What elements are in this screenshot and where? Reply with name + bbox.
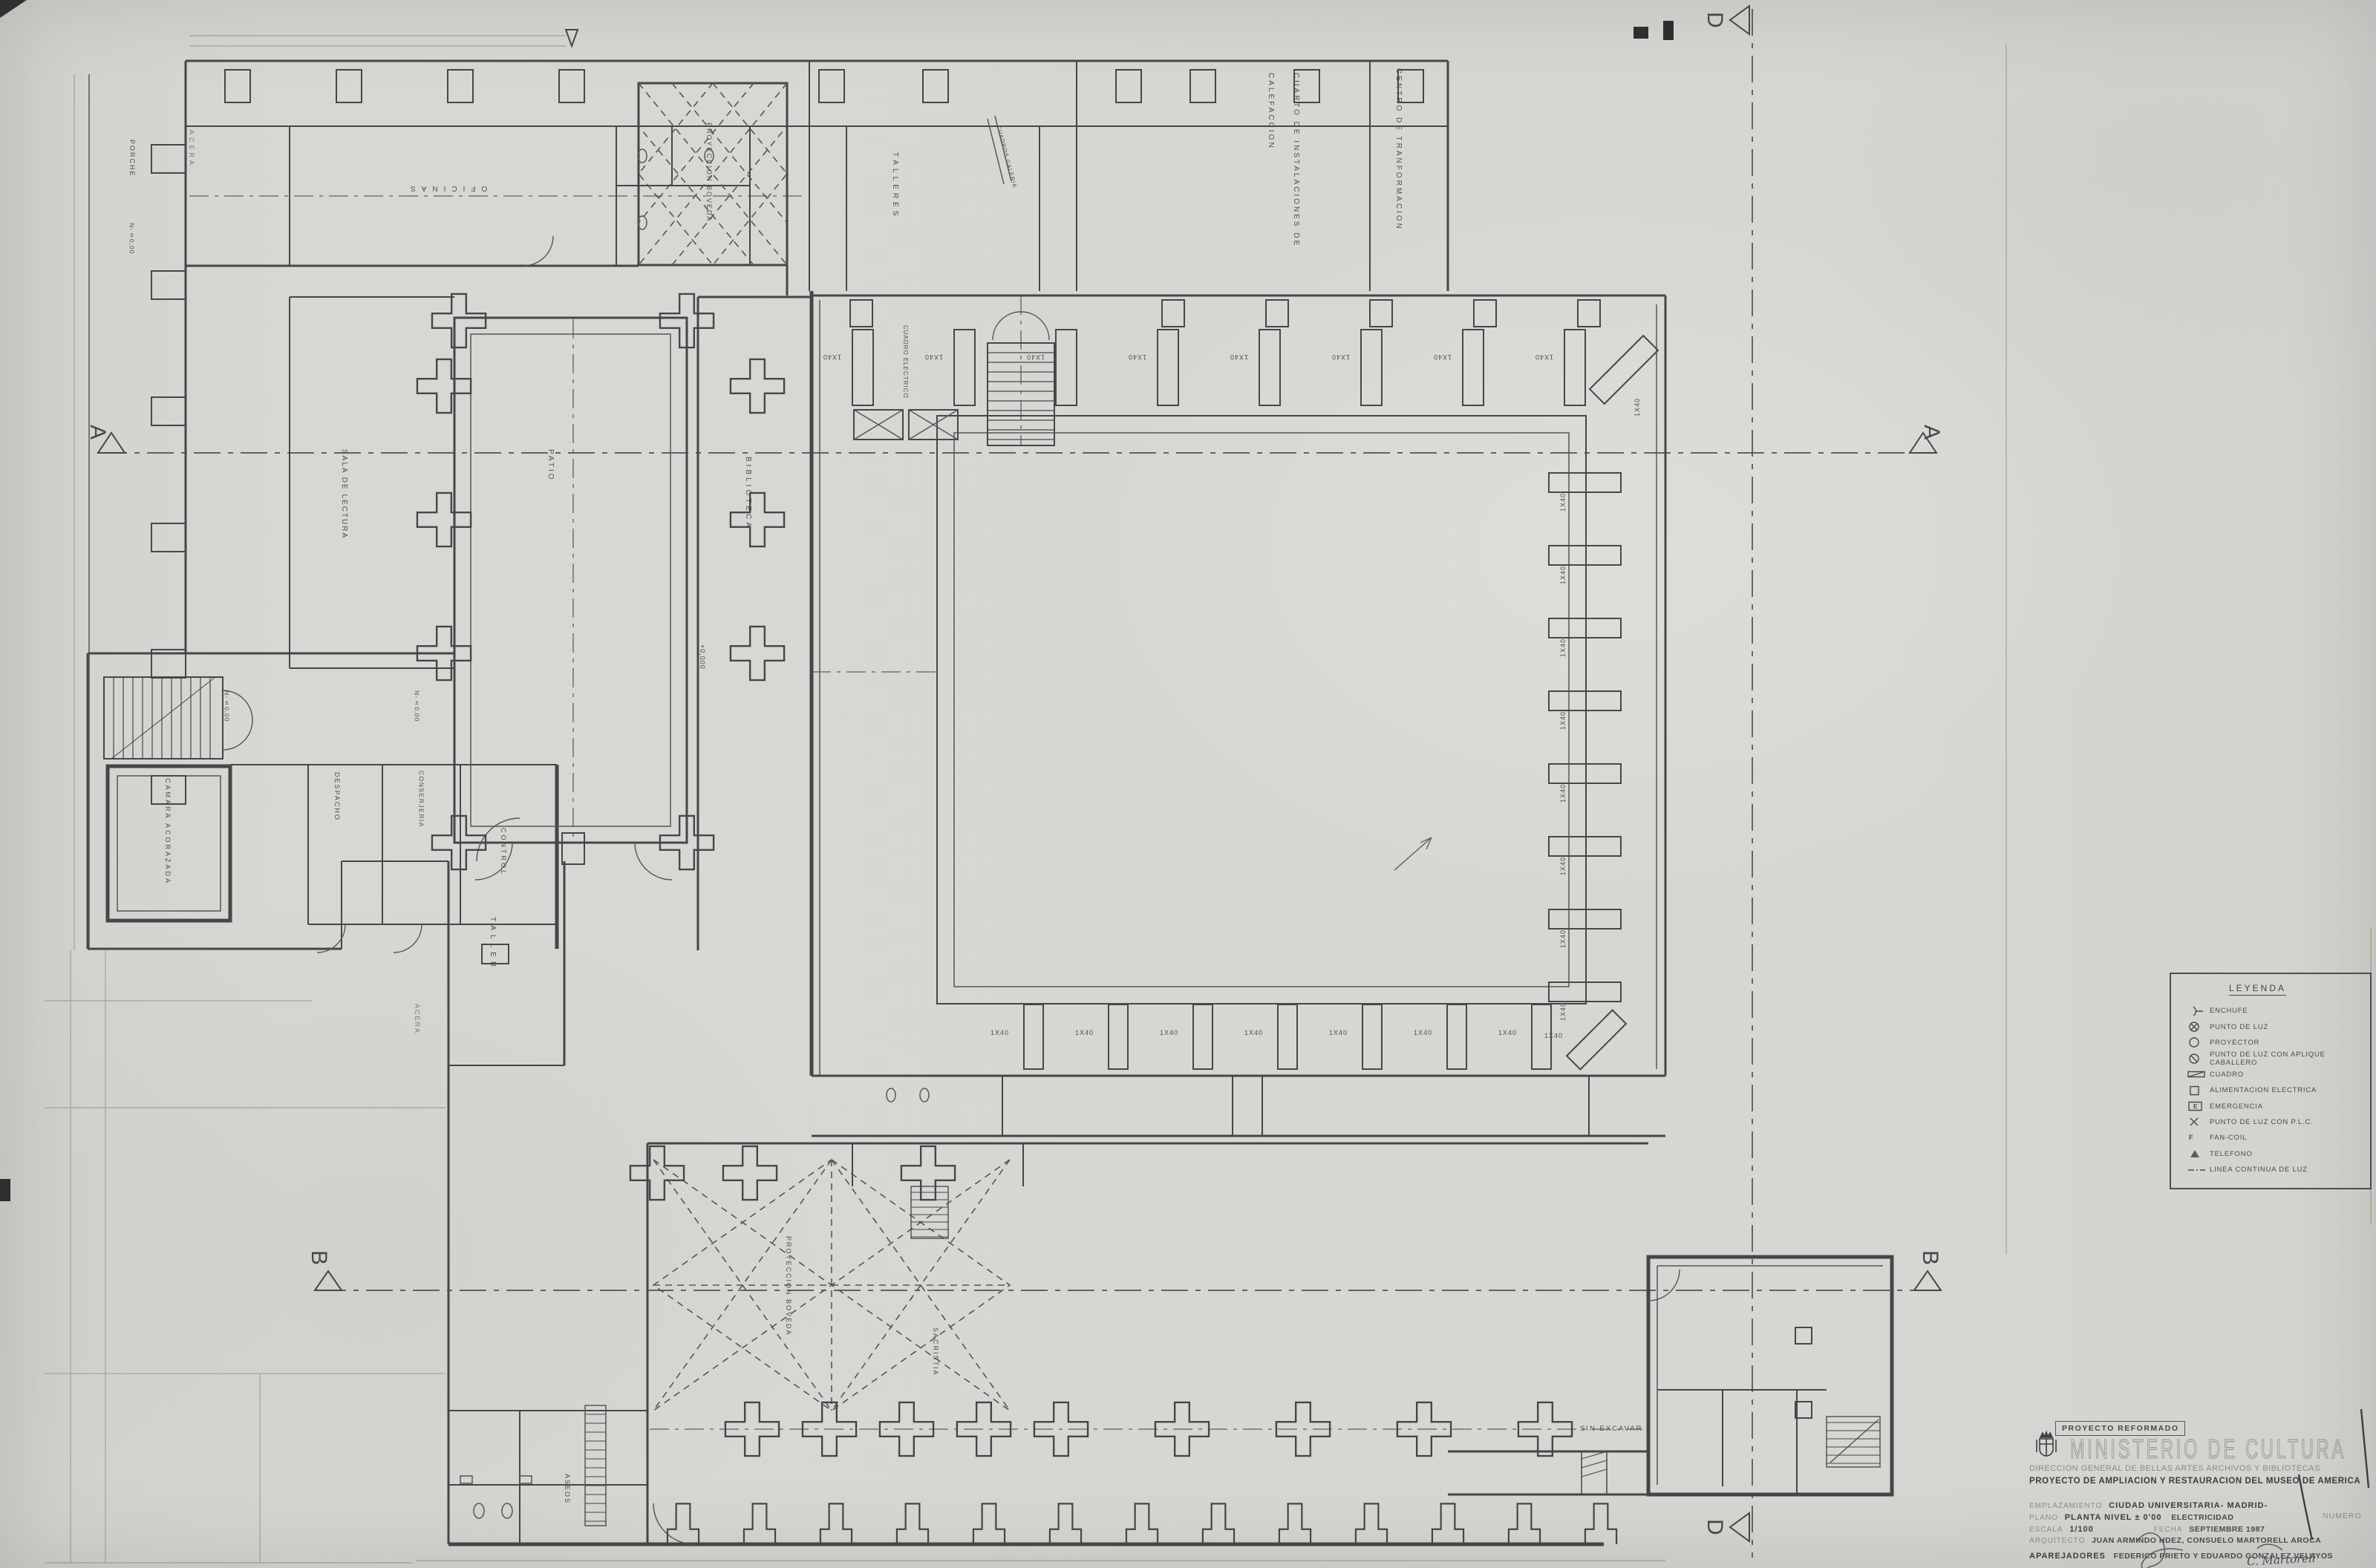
escala-label: ESCALA <box>2029 1526 2063 1534</box>
legend-rows: ENCHUFE PUNTO DE LUZ PROYECTOR PUNTO DE … <box>2171 1003 2370 1177</box>
label-centro-transformacion: CENTRO DE TRANFORMACION <box>1394 68 1403 306</box>
light-fixture-1x40 <box>1446 1004 1467 1070</box>
label-porche-level: N-±0,00 <box>128 223 134 255</box>
legend-item: PUNTO DE LUZ CON P.L.C. <box>2171 1114 2370 1130</box>
label-camara-acorazada: CAMARA ACORAZADA <box>163 778 171 945</box>
emplazamiento-row: EMPLAZAMIENTO CIUDAD UNIVERSITARIA- MADR… <box>2029 1501 2268 1510</box>
legend-title: LEYENDA <box>2229 983 2286 996</box>
legend-item: TELEFONO <box>2171 1146 2370 1162</box>
light-fixture-1x40 <box>1548 690 1622 711</box>
fixture-label: 1X40 <box>1559 1002 1567 1021</box>
fecha-value: SEPTIEMBRE 1987 <box>2189 1525 2265 1534</box>
walls-main <box>88 61 1665 1544</box>
light-fixture-1x40 <box>1548 981 1622 1002</box>
light-fixture-1x40 <box>1548 909 1622 930</box>
fixture-label: 1X40 <box>1559 930 1567 948</box>
legend-item: ALIMENTACION ELECTRICA <box>2171 1082 2370 1098</box>
light-fixture-1x40 <box>1362 1004 1383 1070</box>
emergencia-icon: E <box>2187 1100 2210 1112</box>
label-proyeccion-boveda-chapel: PROYECCION BOVEDA <box>765 1236 796 1344</box>
label-cota: +0,000 <box>698 644 705 670</box>
punto-de-luz-icon <box>2187 1021 2210 1033</box>
fixture-label: 1X40 <box>1559 493 1567 512</box>
fixture-label: 1X40 <box>1535 353 1553 361</box>
fixture-label: 1X40 <box>1244 1029 1263 1036</box>
signature: C. Martorell <box>2247 1552 2316 1568</box>
arquitecto-row: ARQUITECTO JUAN ARMINDO HDEZ, CONSUELO M… <box>2029 1536 2321 1545</box>
title-block: PROYECTO REFORMADO DIRECCION GENERAL DE … <box>2024 1411 2376 1568</box>
light-fixture-1x40 <box>1548 763 1622 784</box>
legend-item: LINEA CONTINUA DE LUZ <box>2171 1162 2370 1177</box>
fixture-label: 1X40 <box>1433 353 1452 361</box>
fixture-label: 1X40 <box>1544 1032 1563 1039</box>
arquitecto-label: ARQUITECTO <box>2029 1537 2085 1545</box>
emplazamiento-label: EMPLAZAMIENTO <box>2029 1502 2102 1510</box>
vault-projection-chapel <box>653 1160 1010 1411</box>
arquitecto-value: JUAN ARMINDO HDEZ, CONSUELO MARTORELL AR… <box>2092 1536 2321 1545</box>
label-conserjeria: CONSERJERIA <box>417 771 424 828</box>
generated-pillars-stairs <box>111 70 1880 1544</box>
enchufe-icon <box>2187 1005 2210 1017</box>
proyector-icon <box>2187 1036 2210 1048</box>
light-fixture-1x40 <box>1259 329 1281 406</box>
numero-label: NUMERO <box>2323 1512 2362 1520</box>
fixture-label: 1X40 <box>1633 398 1641 416</box>
fixture-label: 1X40 <box>1075 1029 1094 1036</box>
label-calefaccion: CUARTO DE INSTALACIONES DE CALEFACCION <box>1231 73 1308 295</box>
label-aseos: ASEOS <box>563 1474 570 1504</box>
legend-item: ENCHUFE <box>2171 1003 2370 1019</box>
project-title-line: PROYECTO DE AMPLIACION Y RESTAURACION DE… <box>2029 1477 2360 1486</box>
light-fixture-1x40 <box>852 329 874 406</box>
legend-box: LEYENDA ENCHUFE PUNTO DE LUZ PROYECTOR <box>2170 973 2372 1189</box>
centerlines <box>189 196 1642 1429</box>
plano-value-2: ELECTRICIDAD <box>2171 1513 2233 1522</box>
fixture-label: 1X40 <box>1559 711 1567 730</box>
aplique-caballero-icon <box>2187 1053 2210 1065</box>
label-sala-lectura: SALA DE LECTURA <box>340 449 348 605</box>
alimentacion-icon <box>2187 1085 2210 1097</box>
fecha-label: FECHA <box>2154 1526 2183 1534</box>
light-fixture-1x40 <box>1277 1004 1298 1070</box>
telefono-icon <box>2187 1148 2210 1160</box>
direccion-general-line: DIRECCION GENERAL DE BELLAS ARTES ARCHIV… <box>2029 1464 2320 1473</box>
section-letter-d-bottom: D <box>1703 1519 1727 1535</box>
light-fixture-1x40 <box>1548 472 1622 493</box>
fixture-label: 1X40 <box>1128 353 1146 361</box>
light-fixture-1x40 <box>1192 1004 1213 1070</box>
fixture-label: 1X40 <box>1414 1029 1432 1036</box>
plan-drawing: A A B B D D MINISTERIO DE CULTURA <box>0 0 2376 1568</box>
fixture-label: 1X40 <box>1559 566 1567 584</box>
emplazamiento-value: CIUDAD UNIVERSITARIA- MADRID- <box>2109 1501 2268 1510</box>
label-porche: PORCHE <box>128 140 135 177</box>
fixture-label: 1X40 <box>823 353 841 361</box>
fixture-label: 1X40 <box>924 353 943 361</box>
light-fixture-1x40 <box>1564 329 1586 406</box>
legend-item: CUADRO <box>2171 1067 2370 1082</box>
legend-item: F FAN-COIL <box>2171 1130 2370 1146</box>
light-fixture-1x40 <box>1108 1004 1129 1070</box>
section-letter-a-right: A <box>1919 425 1944 440</box>
light-fixture-1x40 <box>1055 329 1077 406</box>
label-nivel-a: N-±0,00 <box>223 690 229 722</box>
light-fixture-1x40 <box>953 329 976 406</box>
light-fixture-1x40 <box>1548 836 1622 857</box>
label-biblioteca: BIBLIOTECA <box>744 457 752 530</box>
light-fixture-1x40 <box>1548 618 1622 638</box>
label-acera-top: ACERA <box>187 130 195 168</box>
linea-continua-icon <box>2187 1164 2210 1176</box>
label-oficinas: OFICINAS <box>405 184 487 192</box>
fixture-label: 1X40 <box>1329 1029 1348 1036</box>
fixture-label: 1X40 <box>1559 638 1567 657</box>
fixture-label: 1X40 <box>1160 1029 1178 1036</box>
fixture-label: 1X40 <box>1230 353 1248 361</box>
section-letter-b-right: B <box>1918 1250 1942 1265</box>
fixture-label: 1X40 <box>1559 857 1567 875</box>
light-fixture-1x40 <box>1360 329 1383 406</box>
light-fixture-1x40 <box>1548 545 1622 566</box>
legend-item: PUNTO DE LUZ CON APLIQUE CABALLERO <box>2171 1051 2370 1066</box>
label-taller: TALLER <box>489 917 497 971</box>
fixture-label: 1X40 <box>1498 1029 1517 1036</box>
section-letter-b-left: B <box>307 1250 331 1265</box>
label-sacristia: SACRISTIA <box>931 1327 939 1376</box>
walls-partition <box>104 61 1827 1544</box>
fixture-label: 1X40 <box>1559 784 1567 803</box>
fixture-label: 1X40 <box>990 1029 1009 1036</box>
plano-label: PLANO <box>2029 1514 2058 1522</box>
escala-fecha-row: ESCALA 1/100 FECHA SEPTIEMBRE 1987 <box>2029 1525 2265 1534</box>
label-patio: PATIO <box>546 449 555 482</box>
cuadro-icon <box>2187 1068 2210 1080</box>
label-despacho: DESPACHO <box>333 772 340 821</box>
walls-thin <box>89 74 1883 1526</box>
label-control: CONTROL <box>499 828 506 876</box>
escala-value: 1/100 <box>2069 1525 2094 1534</box>
stamp-proyecto-reformado: PROYECTO REFORMADO <box>2055 1421 2185 1436</box>
label-cuadro-electrico: CUADRO ELECTRICO <box>884 325 912 399</box>
light-fixture-1x40 <box>1157 329 1179 406</box>
legend-item: PUNTO DE LUZ <box>2171 1019 2370 1034</box>
fan-coil-letter-icon: F <box>2187 1132 2210 1144</box>
plano-value: PLANTA NIVEL ± 0'00 <box>2065 1513 2162 1522</box>
walls-thick <box>108 291 1892 1544</box>
label-nivel-b: N-±0,00 <box>413 690 420 722</box>
scan-artifacts <box>0 0 1674 1201</box>
blueprint-sheet: A A B B D D MINISTERIO DE CULTURA ACERA … <box>0 0 2376 1568</box>
fixture-label: 1X40 <box>1026 353 1045 361</box>
legend-item: PROYECTOR <box>2171 1035 2370 1051</box>
fixture-label: 1X40 <box>1331 353 1350 361</box>
label-proyeccion-boveda-entrance: PROYECCION BOVEDA <box>679 122 718 234</box>
section-letter-a-left: A <box>85 425 110 440</box>
label-talleres: TALLERES <box>891 152 899 219</box>
label-acera-bottom: ACERA <box>413 1004 420 1034</box>
legend-item: E EMERGENCIA <box>2171 1098 2370 1114</box>
punto-luz-plc-icon <box>2187 1116 2210 1128</box>
light-fixture-1x40 <box>1023 1004 1044 1070</box>
north-arrow-icon <box>1394 837 1432 870</box>
light-fixture-1x40 <box>1462 329 1484 406</box>
aparejadores-label: APAREJADORES <box>2029 1552 2106 1561</box>
plano-row: PLANO PLANTA NIVEL ± 0'00 ELECTRICIDAD <box>2029 1513 2233 1522</box>
label-sin-excavar: SIN EXCAVAR <box>1580 1425 1642 1433</box>
section-letter-d-top: D <box>1703 12 1727 28</box>
